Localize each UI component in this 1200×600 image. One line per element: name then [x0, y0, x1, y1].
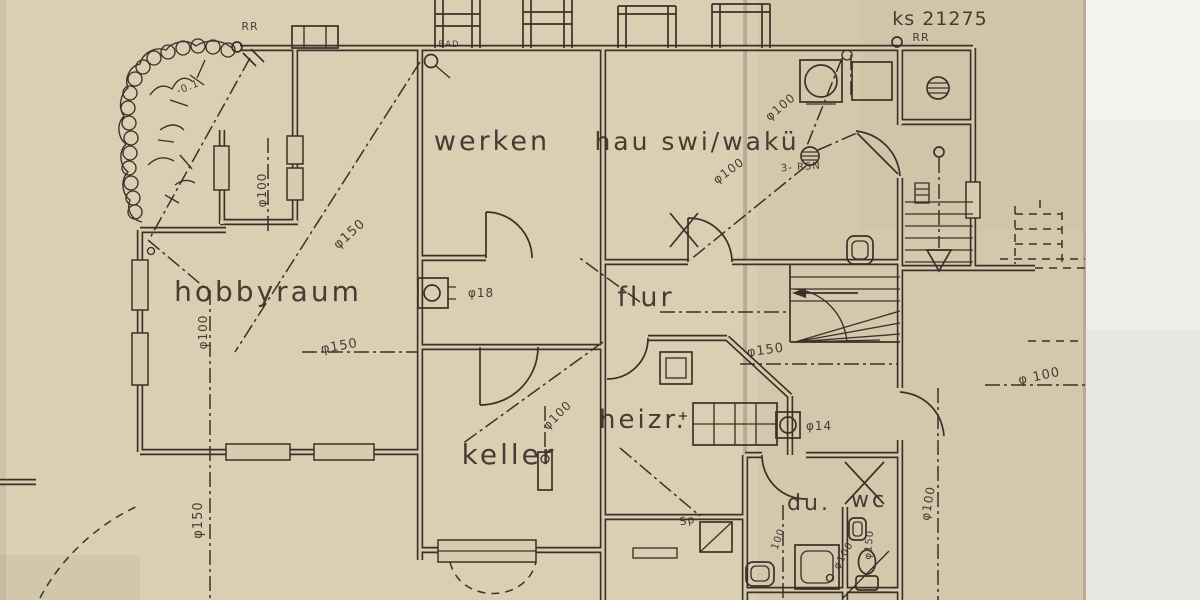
- annotation-rr-left: RR: [241, 20, 258, 33]
- pipe-label-12: φ14: [806, 419, 832, 433]
- pipe-label-0: φ100: [255, 173, 269, 208]
- room-label-werken: werken: [434, 126, 550, 157]
- room-label-hauswi: hau swi/wakü: [594, 127, 799, 156]
- room-label-keller: keller: [462, 438, 557, 471]
- drawing-number: ks 21275: [892, 8, 987, 30]
- room-label-wc: wc: [851, 488, 887, 513]
- annotation-sp: Sp: [678, 513, 696, 529]
- floorplan-photo: ks 21275 werken hau swi/wakü hobbyraum f…: [0, 0, 1200, 600]
- room-label-du: du.: [787, 491, 831, 516]
- room-label-hobbyraum: hobbyraum: [174, 275, 362, 308]
- pipe-label-1: φ100: [196, 315, 210, 350]
- pipe-label-8: φ150: [191, 501, 206, 538]
- room-label-flur: flur: [617, 282, 674, 313]
- pipe-label-11: φ18: [468, 286, 494, 300]
- annotation-bad: BAD: [438, 40, 459, 50]
- room-label-heizr: heizr.: [599, 405, 687, 435]
- floorplan-drawing: ks 21275 werken hau swi/wakü hobbyraum f…: [0, 0, 1200, 600]
- annotation-rr-right: RR: [912, 31, 929, 44]
